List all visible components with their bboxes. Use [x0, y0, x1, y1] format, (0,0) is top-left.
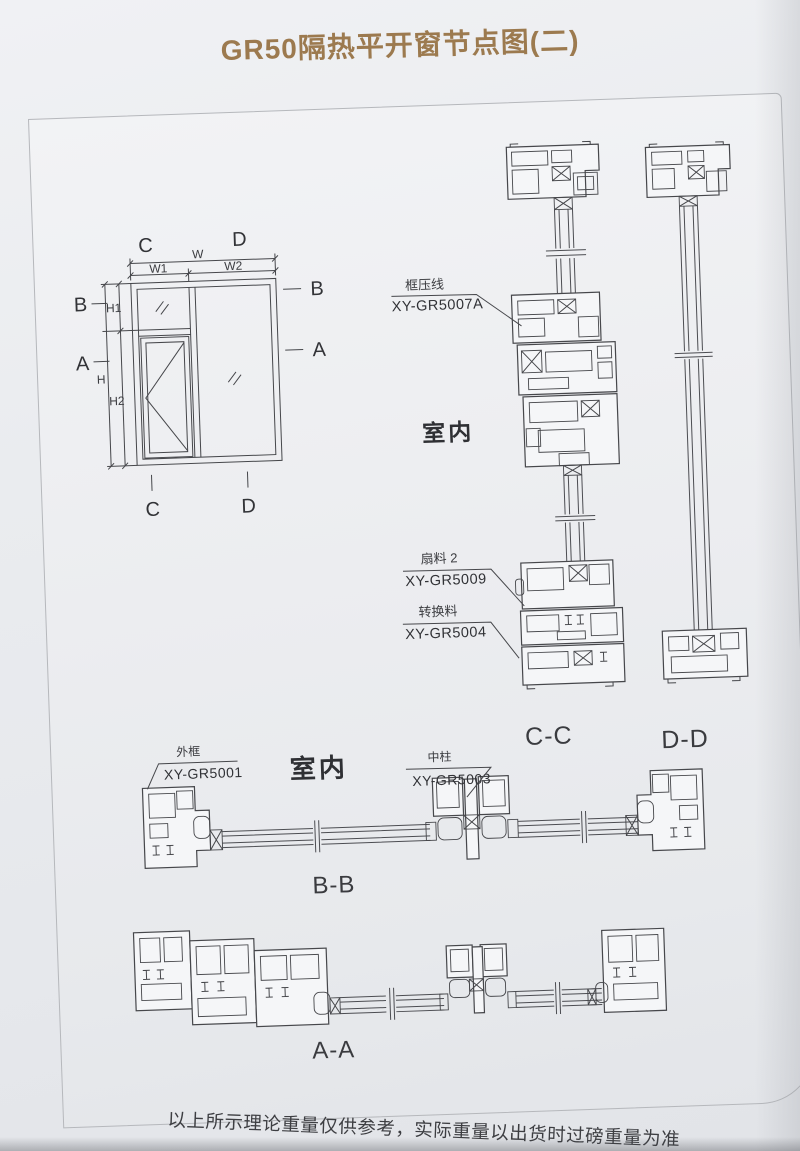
drawing-sheet: W W1 W2 H1 H H2 C D C D: [28, 93, 800, 1129]
photo-bottom-edge: [0, 1137, 800, 1151]
photo-right-shade: [755, 0, 800, 1151]
page-title: GR50隔热平开窗节点图(二): [220, 19, 580, 69]
catalog-page-photo: GR50隔热平开窗节点图(二) W: [0, 0, 800, 1151]
leader-lines: [29, 94, 800, 1128]
